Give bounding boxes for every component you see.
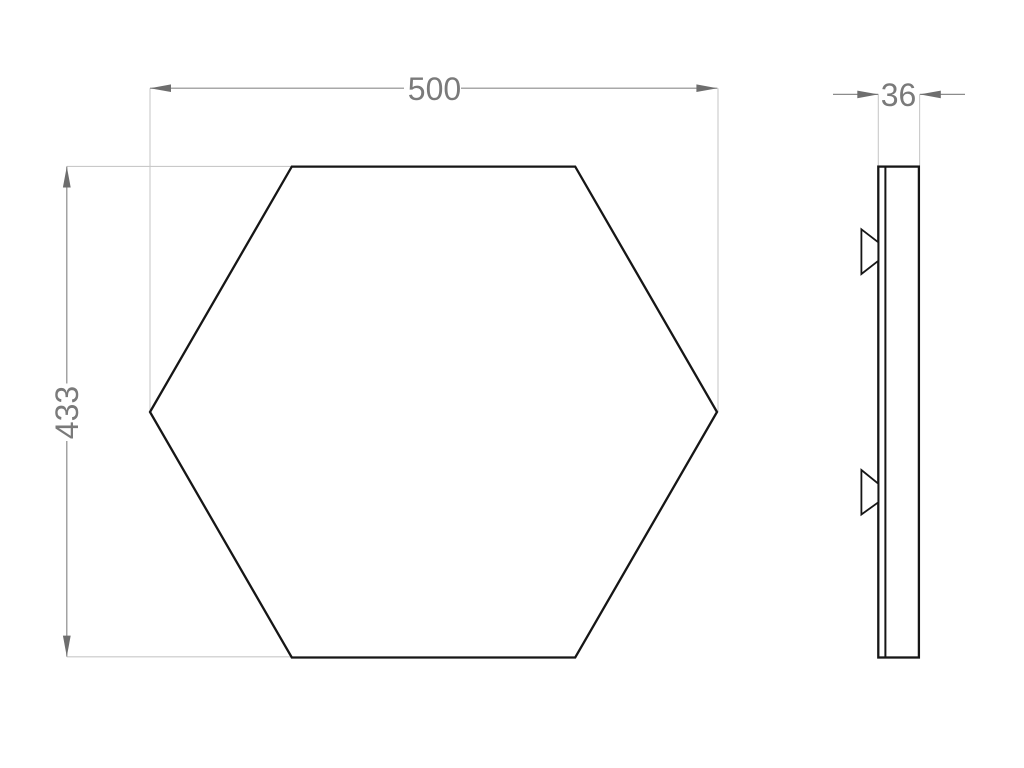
svg-text:433: 433 [49, 386, 85, 439]
svg-text:500: 500 [408, 71, 461, 107]
svg-text:36: 36 [881, 77, 917, 113]
